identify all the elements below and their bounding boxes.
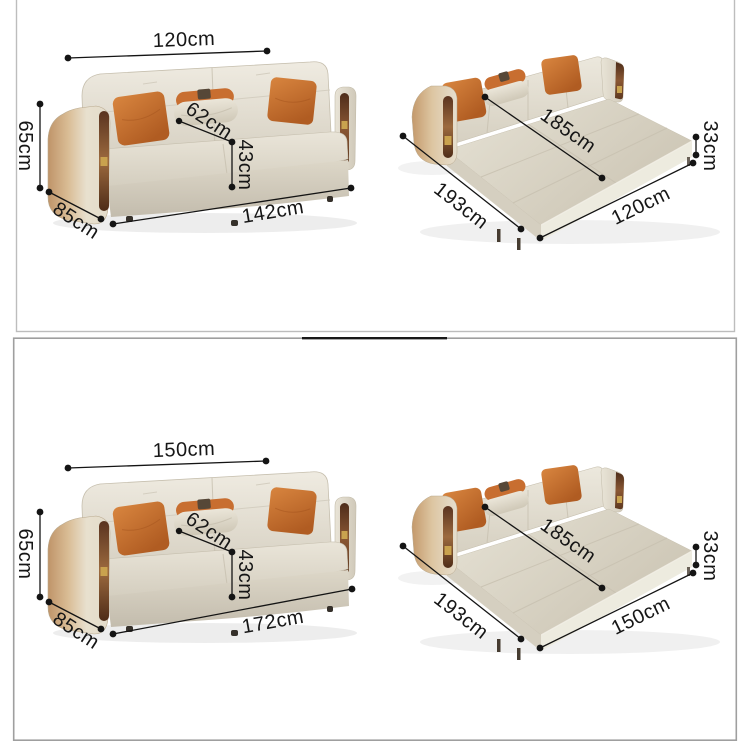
dim-label-back-width: 150cm: [152, 438, 215, 462]
dim-label-height: 65cm: [14, 529, 36, 580]
dimension-diagram-canvas: 120cm 65cm 62cm 43cm 85cm 142cm 185cm 33…: [0, 0, 750, 746]
dim-label-seat-height: 43cm: [234, 140, 256, 191]
dim-label-back-width: 120cm: [152, 28, 215, 52]
product-dimension-sheet: 120cm 65cm 62cm 43cm 85cm 142cm 185cm 33…: [0, 0, 750, 746]
dim-label-mattress-height: 33cm: [699, 121, 721, 172]
dim-label-mattress-height: 33cm: [699, 531, 721, 582]
dim-label-seat-height: 43cm: [234, 550, 256, 601]
dim-label-height: 65cm: [14, 121, 36, 172]
